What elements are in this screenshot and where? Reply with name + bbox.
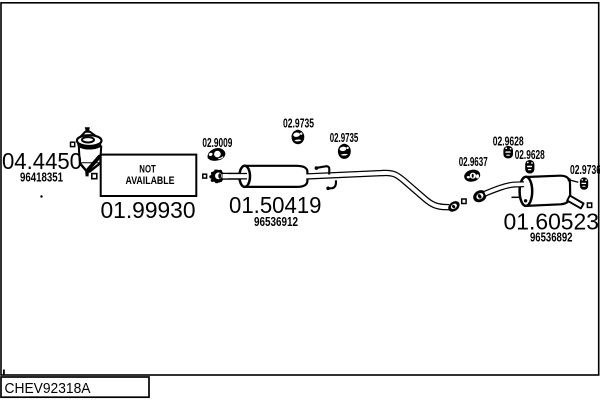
svg-text:02.9735: 02.9735 — [330, 130, 359, 145]
svg-text:01.99930: 01.99930 — [101, 197, 196, 223]
svg-text:96536892: 96536892 — [530, 230, 573, 245]
svg-text:NOT: NOT — [139, 163, 156, 175]
svg-text:02.9009: 02.9009 — [202, 135, 232, 150]
svg-text:02.9735: 02.9735 — [283, 116, 314, 131]
svg-text:02.9628: 02.9628 — [515, 147, 545, 162]
svg-text:96536912: 96536912 — [254, 214, 298, 229]
svg-text:AVAILABLE: AVAILABLE — [126, 175, 175, 187]
svg-text:02.9637: 02.9637 — [459, 154, 488, 169]
svg-text:CHEV92318A: CHEV92318A — [5, 381, 91, 397]
svg-text:96418351: 96418351 — [20, 170, 63, 185]
svg-text:02.9736: 02.9736 — [570, 162, 600, 177]
